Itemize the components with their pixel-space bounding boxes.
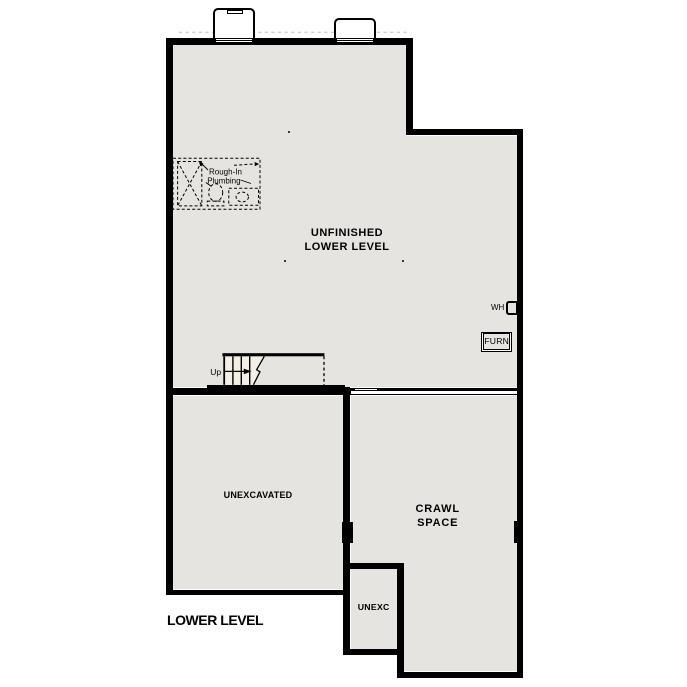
svg-text:Rough-In: Rough-In — [209, 167, 242, 176]
svg-text:Plumbing: Plumbing — [207, 176, 240, 185]
